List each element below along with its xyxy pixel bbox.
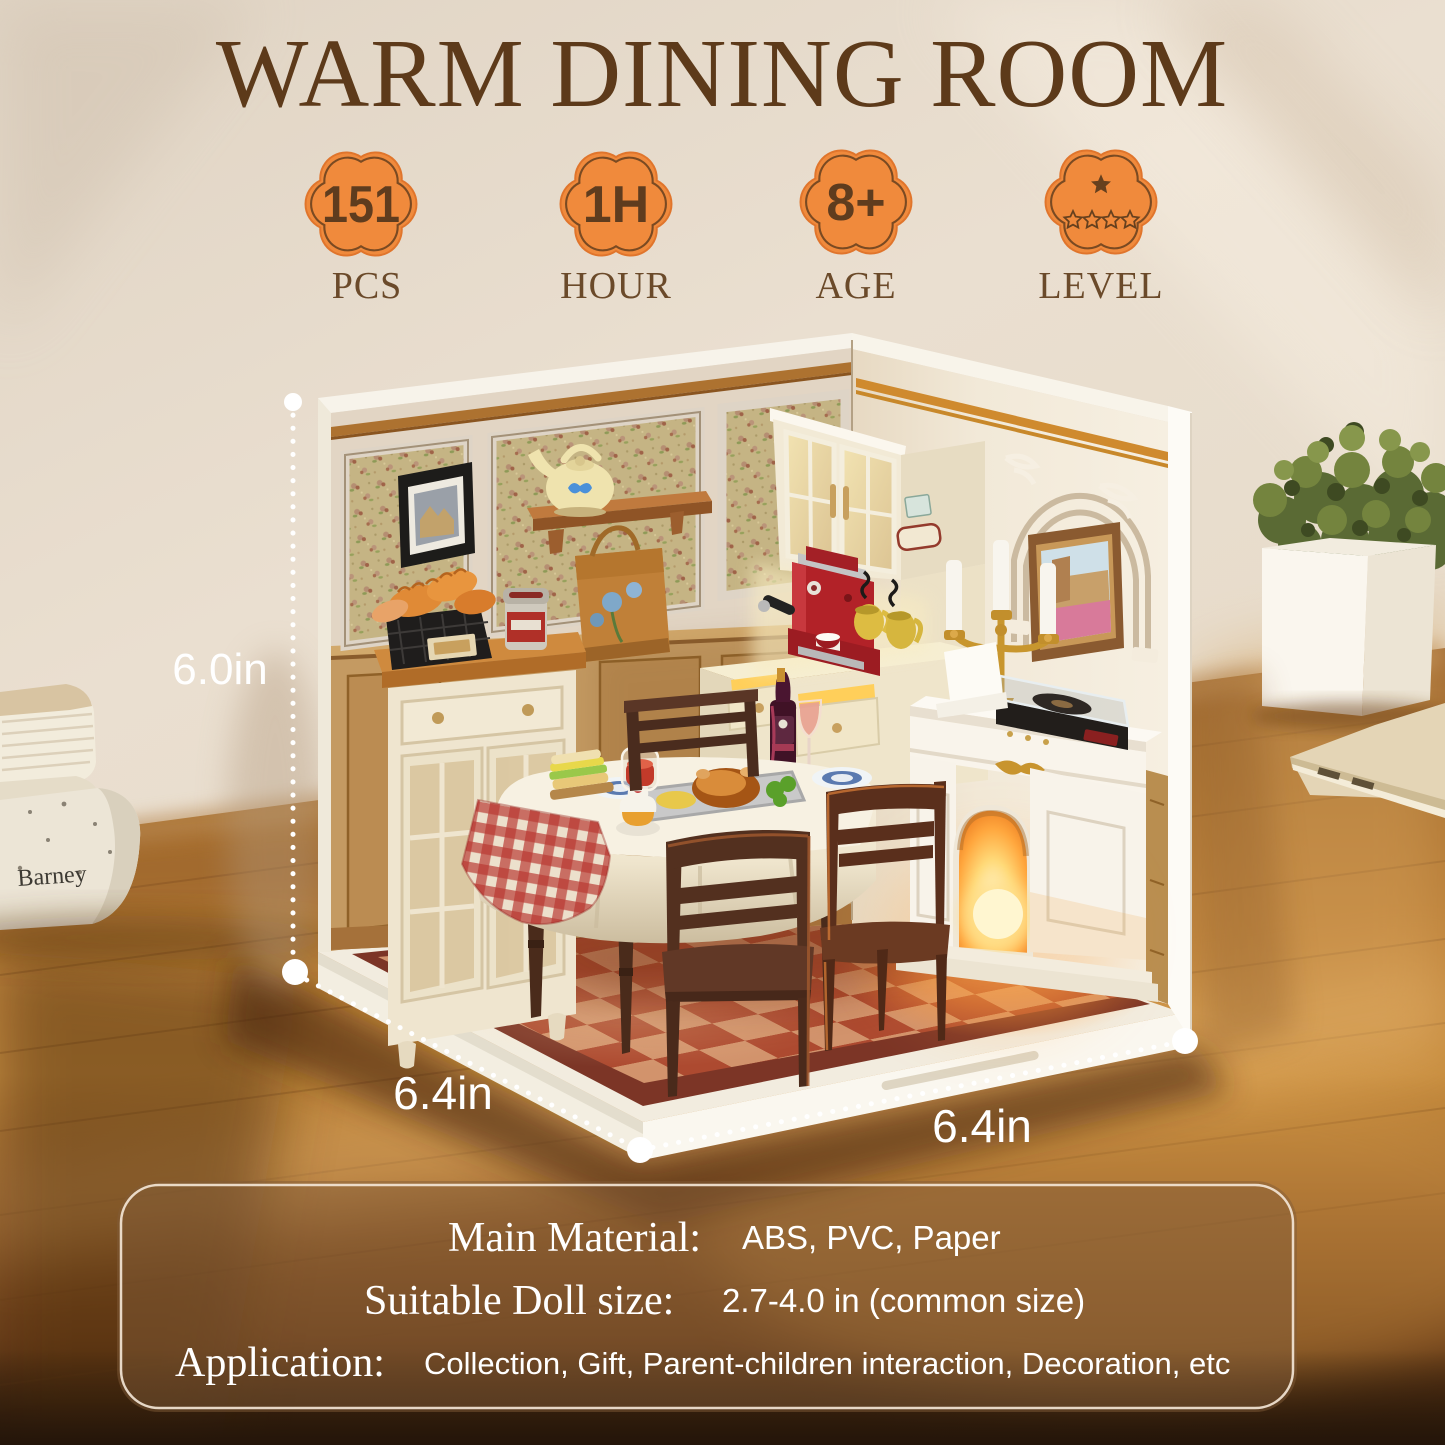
svg-text:8+: 8+ bbox=[826, 174, 885, 232]
svg-text:2.7-4.0 in (common size): 2.7-4.0 in (common size) bbox=[722, 1282, 1085, 1319]
svg-text:6.0in: 6.0in bbox=[172, 645, 267, 694]
svg-text:Application:: Application: bbox=[175, 1340, 385, 1386]
svg-text:PCS: PCS bbox=[332, 265, 403, 307]
svg-text:Collection, Gift, Parent-child: Collection, Gift, Parent-children intera… bbox=[424, 1346, 1230, 1381]
svg-text:HOUR: HOUR bbox=[560, 265, 672, 307]
svg-text:6.4in: 6.4in bbox=[932, 1100, 1032, 1152]
svg-text:151: 151 bbox=[322, 176, 400, 234]
svg-text:1H: 1H bbox=[583, 176, 649, 234]
svg-text:AGE: AGE bbox=[815, 265, 896, 307]
svg-text:6.4in: 6.4in bbox=[393, 1067, 493, 1119]
svg-text:ABS, PVC, Paper: ABS, PVC, Paper bbox=[742, 1219, 1001, 1256]
svg-text:Barney: Barney bbox=[17, 861, 88, 892]
svg-text:WARM DINING ROOM: WARM DINING ROOM bbox=[216, 20, 1228, 128]
svg-text:Main Material:: Main Material: bbox=[448, 1215, 701, 1261]
svg-text:LEVEL: LEVEL bbox=[1038, 265, 1163, 307]
svg-text:Suitable Doll size:: Suitable Doll size: bbox=[364, 1278, 674, 1324]
